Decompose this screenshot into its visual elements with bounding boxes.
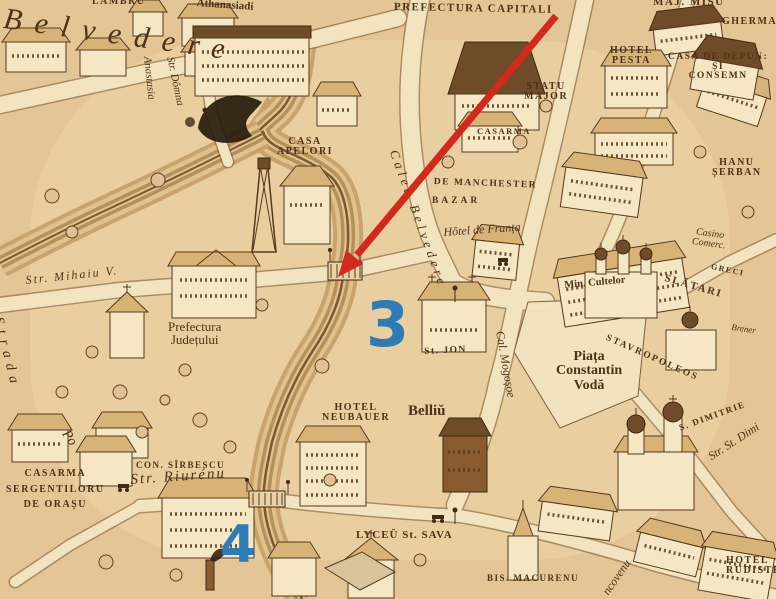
map-image: Belvedere LAMBRU Athanasiadi PREFECTURA …: [0, 0, 776, 599]
annotation-marker-4: 4: [220, 515, 256, 575]
annotation-marker-3: 3: [366, 288, 409, 361]
